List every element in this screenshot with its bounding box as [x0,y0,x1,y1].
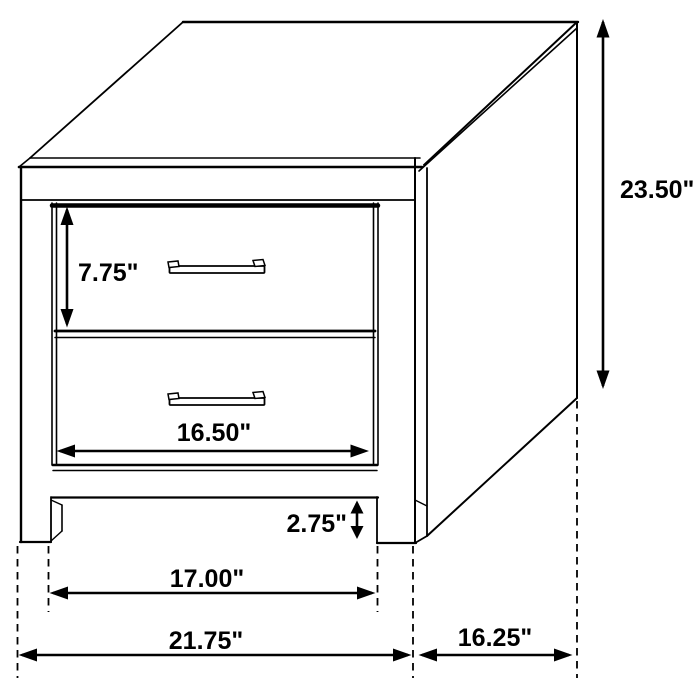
dim-label-drawer-opening-width: 16.50" [177,419,251,447]
drawer-handle-top [168,260,265,274]
arrow-overall-height [597,19,610,389]
arrow-top-drawer-height [61,207,74,328]
dimension-arrows [19,19,610,662]
dim-label-overall-width: 21.75" [169,627,243,655]
dim-label-overall-height: 23.50" [620,176,694,204]
furniture-dimension-diagram: 23.50" 7.75" 16.50" 2.75" 17.00" 21.75" … [0,0,700,700]
dim-label-side-depth: 16.25" [458,624,532,652]
diagram-canvas: 23.50" 7.75" 16.50" 2.75" 17.00" 21.75" … [0,0,700,700]
dim-label-inner-leg-span: 17.00" [170,565,244,593]
dim-label-base-clearance: 2.75" [286,510,347,538]
top-face [19,22,578,171]
arrow-base-clearance [351,501,364,540]
side-face [415,22,577,543]
dim-label-top-drawer-height: 7.75" [78,259,139,287]
drawer-handle-bottom [168,392,265,406]
front-face [21,167,415,542]
